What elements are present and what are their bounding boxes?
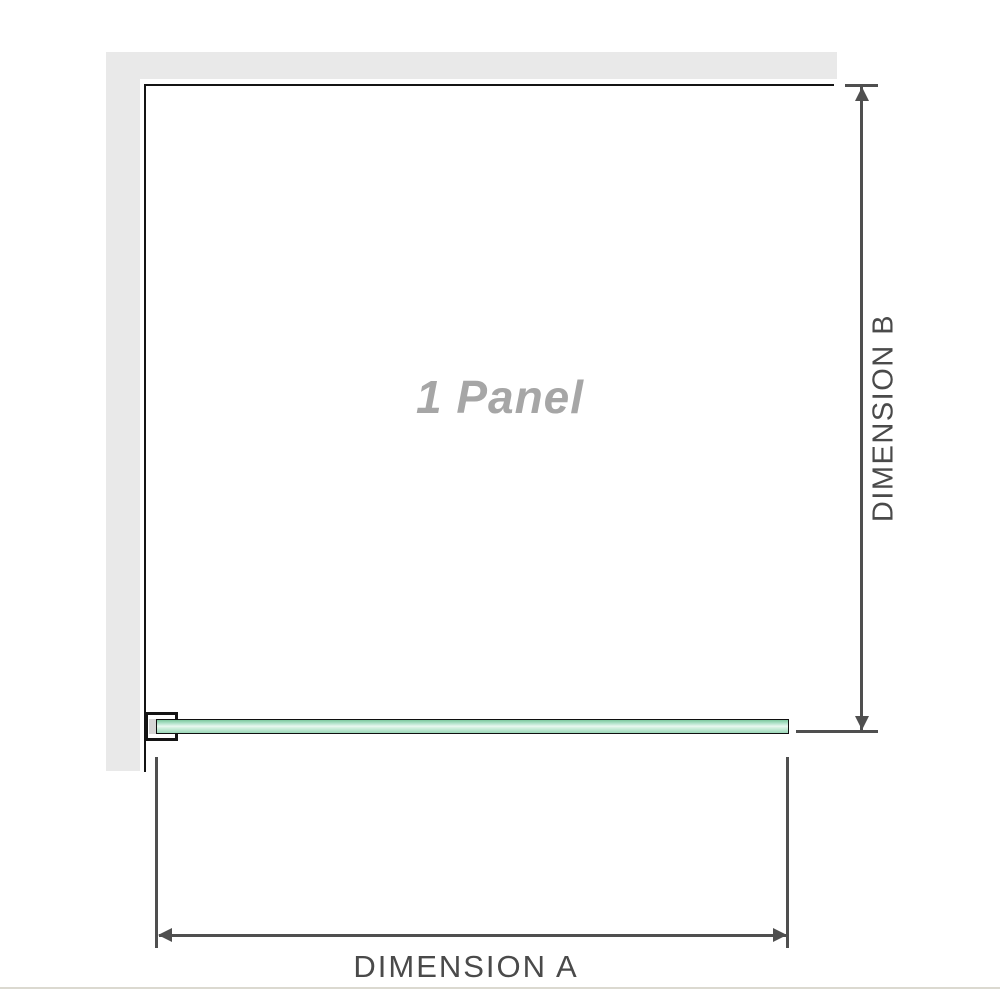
dim-a-arrowhead-left-icon: [158, 928, 172, 942]
bottom-divider: [0, 987, 1000, 989]
dim-b-tick-bottom: [796, 730, 878, 733]
glass-panel: [156, 719, 789, 734]
dim-b-arrowhead-up-icon: [855, 87, 869, 101]
dim-a-line: [159, 934, 787, 937]
dim-b-arrowhead-down-icon: [855, 716, 869, 730]
dim-a-extension-right: [786, 757, 789, 948]
dim-a-label: DIMENSION A: [353, 949, 578, 985]
panel-dimension-diagram: 1 Panel DIMENSION B DIMENSION A: [0, 0, 1000, 1000]
dim-a-arrowhead-right-icon: [773, 928, 787, 942]
dim-b-label: DIMENSION B: [868, 314, 901, 522]
panel-outline: [144, 84, 834, 772]
dim-b-line: [860, 87, 863, 730]
dim-a-extension-left: [155, 757, 158, 948]
panel-label: 1 Panel: [350, 370, 650, 424]
wall-left: [106, 52, 140, 771]
wall-top: [106, 52, 837, 79]
